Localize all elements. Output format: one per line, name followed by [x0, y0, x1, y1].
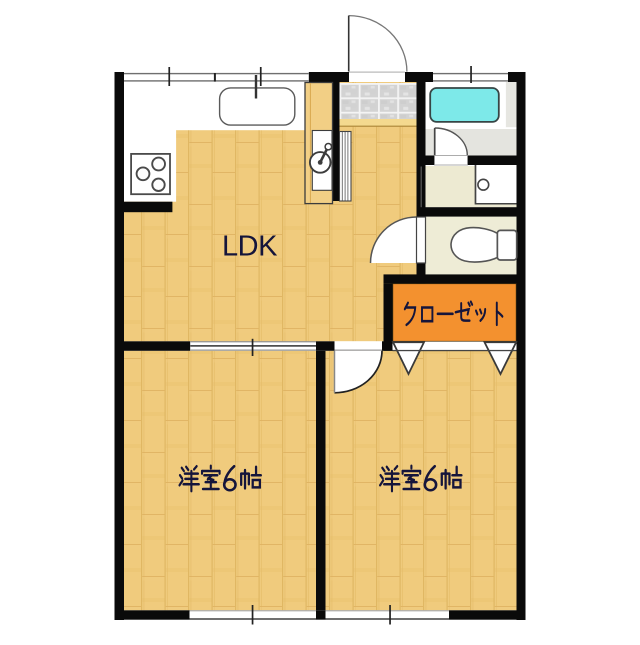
svg-text:LDK: LDK [222, 230, 278, 262]
